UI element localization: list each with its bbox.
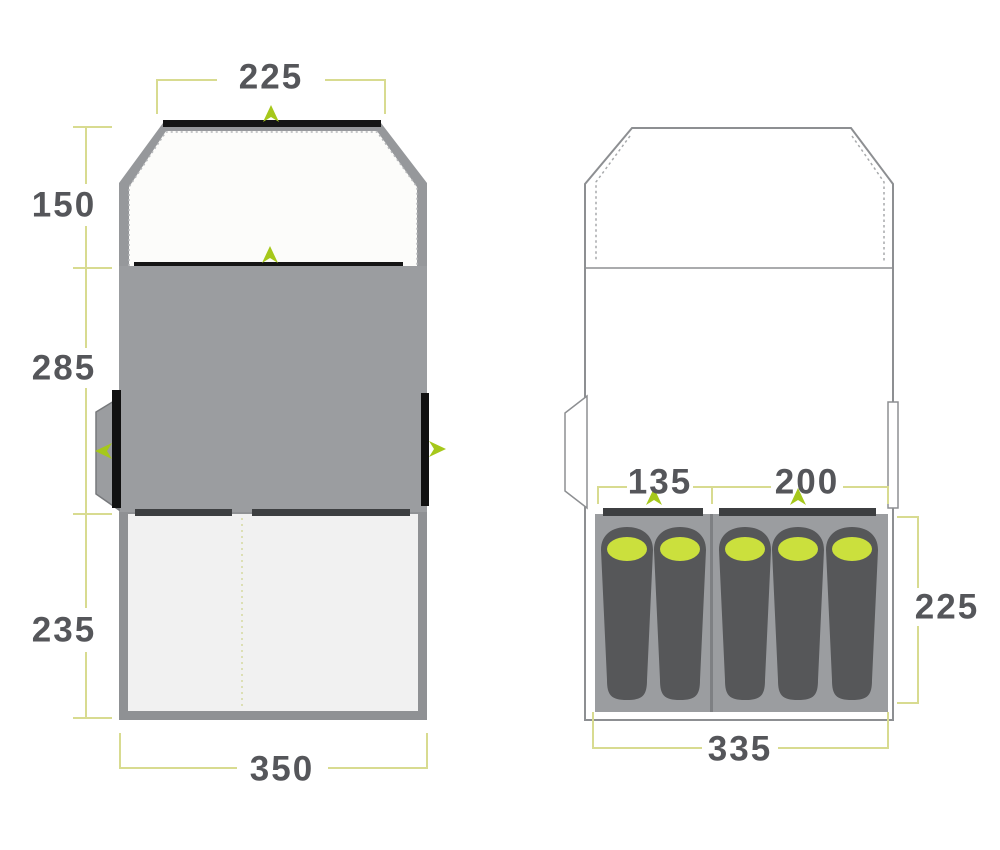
dim-label-porch-depth: 150 — [32, 188, 96, 223]
door-arrow-icon — [429, 441, 446, 457]
living-area — [119, 266, 427, 512]
sleeping-bags — [601, 527, 878, 700]
left-side-door-bar — [112, 390, 121, 508]
sleeping-area-divider — [710, 514, 713, 712]
bedroom-right-door-bar — [252, 509, 410, 516]
dim-label-bedroom-depth-right: 225 — [915, 590, 979, 625]
dim-label-living-depth: 285 — [32, 351, 96, 386]
dim-label-bedroom-depth: 235 — [32, 613, 96, 648]
bedroom-interior — [128, 514, 418, 711]
left-side-door-outline — [565, 396, 587, 508]
dim-label-bedroom-left-width: 135 — [628, 465, 692, 500]
sleeping-bag-pillow — [725, 537, 765, 561]
sleeping-bag-pillow — [778, 537, 818, 561]
sleeping-bag — [826, 527, 878, 700]
sleeping-bag-pillow — [607, 537, 647, 561]
tent-floorplan-diagram: 225 150 285 235 350 135 200 225 335 — [0, 0, 1000, 850]
right-floorplan — [565, 128, 898, 720]
sleeping-left-door-bar — [603, 508, 703, 516]
dim-label-bedroom-total-width: 335 — [708, 732, 772, 767]
bedroom-left-door-bar — [135, 509, 232, 516]
floorplan-graphics — [0, 0, 1000, 850]
sleeping-bag — [654, 527, 706, 700]
front-door-bar — [163, 120, 381, 127]
sleeping-right-door-bar — [719, 508, 876, 516]
sleeping-bag — [601, 527, 653, 700]
sleeping-bag-pillow — [832, 537, 872, 561]
dim-label-bedroom-right-width: 200 — [775, 465, 839, 500]
sleeping-bag — [719, 527, 771, 700]
dim-label-top-width: 225 — [239, 60, 303, 95]
dim-label-total-width: 350 — [250, 752, 314, 787]
sleeping-bag-pillow — [660, 537, 700, 561]
sleeping-bag — [772, 527, 824, 700]
door-arrow-icon — [263, 105, 279, 122]
right-side-door-bar — [421, 393, 429, 506]
right-side-door-outline — [888, 402, 898, 508]
porch-interior — [129, 131, 417, 266]
left-floorplan — [96, 120, 429, 720]
